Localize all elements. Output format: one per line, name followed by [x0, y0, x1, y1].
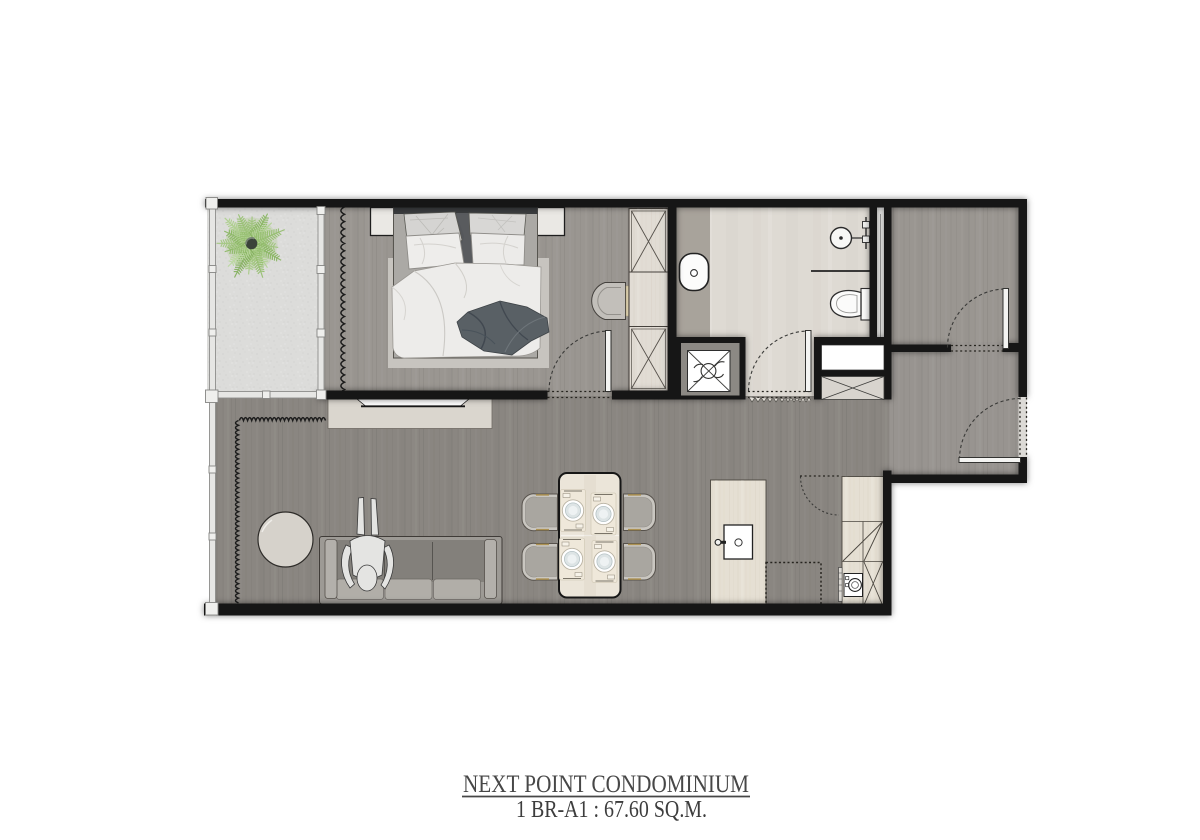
svg-text:1 BR-A1 : 67.60 SQ.M.: 1 BR-A1 : 67.60 SQ.M.	[516, 797, 707, 823]
svg-text:NEXT POINT CONDOMINIUM: NEXT POINT CONDOMINIUM	[463, 771, 749, 798]
